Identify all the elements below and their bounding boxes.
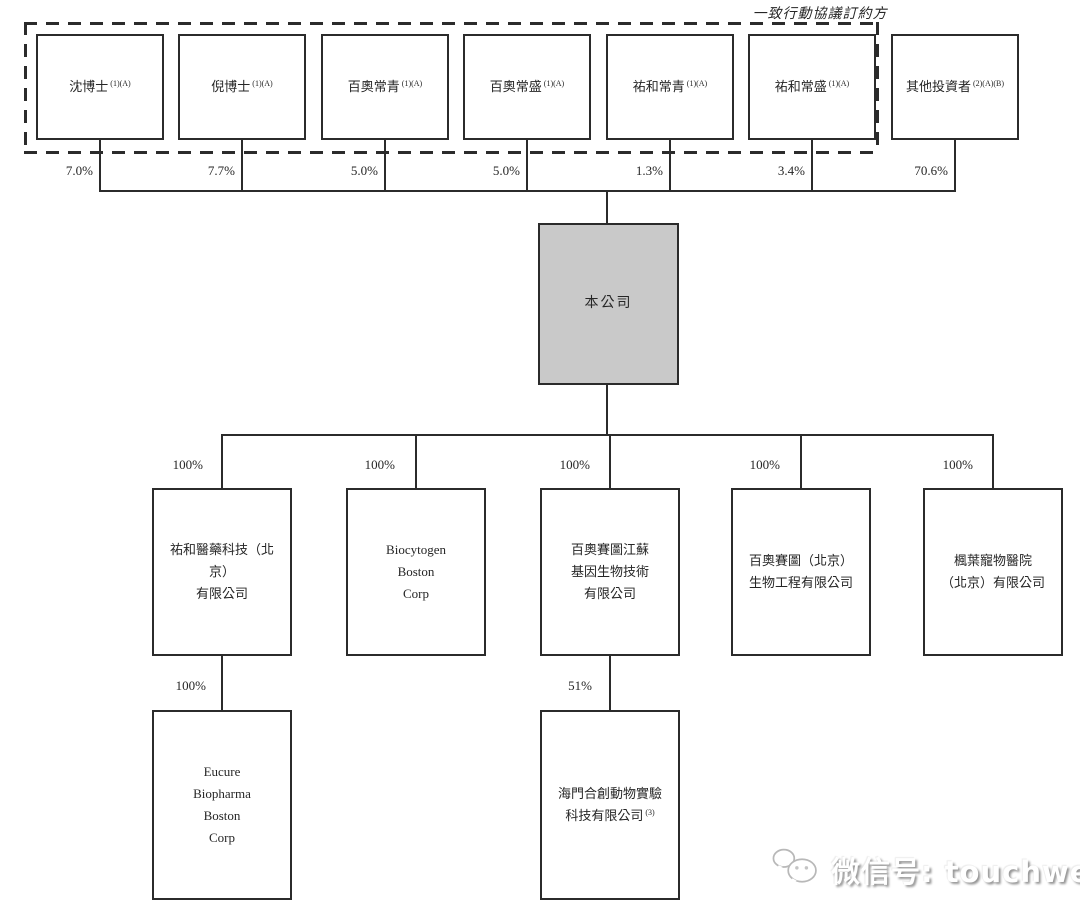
connector-drop	[99, 139, 101, 192]
footnote-marker: (3)	[645, 808, 654, 817]
subsidiary-pct-5: 100%	[917, 457, 973, 473]
footnote-marker: (1)(A)	[252, 79, 272, 88]
shareholder-label: 其他投資者(2)(A)(B)	[906, 76, 1004, 98]
ownership-pct-5: 1.3%	[603, 163, 663, 179]
wechat-watermark: 微信号: touchweb	[770, 845, 1080, 894]
footnote-marker: (1)(A)	[687, 79, 707, 88]
subsubsidiary-label: Eucure Biopharma Boston Corp	[193, 761, 251, 849]
subsidiary-box-4: 百奧賽圖（北京） 生物工程有限公司	[731, 488, 871, 656]
subsidiary-box-3: 百奧賽圖江蘇 基因生物技術 有限公司	[540, 488, 680, 656]
ownership-pct-1: 7.0%	[33, 163, 93, 179]
shareholder-box-3: 百奧常青(1)(A)	[321, 34, 449, 140]
footnote-marker: (1)(A)	[829, 79, 849, 88]
company-box: 本公司	[538, 223, 679, 385]
connector-drop	[241, 139, 243, 192]
subsidiary-pct-1: 100%	[147, 457, 203, 473]
shareholder-label: 沈博士(1)(A)	[69, 76, 130, 98]
company-label: 本公司	[585, 292, 633, 316]
shareholder-label: 百奧常盛(1)(A)	[490, 76, 564, 98]
connector-drop	[992, 434, 994, 489]
ownership-pct-3: 5.0%	[318, 163, 378, 179]
watermark-text: 微信号: touchweb	[831, 849, 1080, 891]
connector-drop	[526, 139, 528, 192]
connector-drop	[221, 655, 223, 711]
shareholder-box-1: 沈博士(1)(A)	[36, 34, 164, 140]
shareholder-box-7: 其他投資者(2)(A)(B)	[891, 34, 1019, 140]
footnote-marker: (1)(A)	[402, 79, 422, 88]
dashed-group-border-left	[24, 22, 27, 154]
subsidiary-pct-4: 100%	[724, 457, 780, 473]
shareholder-label: 祐和常盛(1)(A)	[775, 76, 849, 98]
footnote-marker: (1)(A)	[544, 79, 564, 88]
wechat-icon	[770, 845, 822, 894]
subsubsidiary-box-2: 海門合創動物實驗 科技有限公司(3)	[540, 710, 680, 900]
connector-drop	[811, 139, 813, 192]
connector-bus-top	[99, 190, 956, 192]
connector-drop	[609, 434, 611, 489]
connector-drop	[221, 434, 223, 489]
shareholder-box-6: 祐和常盛(1)(A)	[748, 34, 876, 140]
subsidiary-pct-2: 100%	[339, 457, 395, 473]
dashed-group-border-top	[24, 22, 879, 25]
dashed-group-border-bottom	[24, 151, 879, 154]
shareholder-label: 祐和常青(1)(A)	[633, 76, 707, 98]
subsidiary-box-1: 祐和醫藥科技（北京） 有限公司	[152, 488, 292, 656]
shareholder-label: 百奧常青(1)(A)	[348, 76, 422, 98]
connector-drop	[384, 139, 386, 192]
subsubsidiary-box-1: Eucure Biopharma Boston Corp	[152, 710, 292, 900]
subsidiary-pct-3: 100%	[534, 457, 590, 473]
subsidiary-label: 祐和醫藥科技（北京） 有限公司	[158, 539, 286, 605]
subsidiary-label: Biocytogen Boston Corp	[386, 539, 446, 605]
ownership-pct-2: 7.7%	[175, 163, 235, 179]
org-chart-canvas: 一致行動協議訂約方 沈博士(1)(A) 倪博士(1)(A) 百奧常青(1)(A)…	[0, 0, 1080, 921]
shareholder-box-5: 祐和常青(1)(A)	[606, 34, 734, 140]
connector-drop	[609, 655, 611, 711]
connector-drop	[415, 434, 417, 489]
subsubsidiary-pct-2: 51%	[536, 678, 592, 694]
subsidiary-label: 百奧賽圖（北京） 生物工程有限公司	[749, 550, 853, 594]
subsubsidiary-pct-1: 100%	[150, 678, 206, 694]
connector-bus-subsidiaries	[221, 434, 994, 436]
footnote-marker: (1)(A)	[110, 79, 130, 88]
connector-drop	[669, 139, 671, 192]
subsidiary-box-5: 楓葉寵物醫院 （北京）有限公司	[923, 488, 1063, 656]
footnote-marker: (2)(A)(B)	[973, 79, 1004, 88]
subsubsidiary-label: 海門合創動物實驗 科技有限公司(3)	[558, 783, 662, 827]
ownership-pct-6: 3.4%	[745, 163, 805, 179]
connector-drop	[606, 190, 608, 224]
subsidiary-label: 楓葉寵物醫院 （北京）有限公司	[941, 550, 1045, 594]
subsidiary-label: 百奧賽圖江蘇 基因生物技術 有限公司	[571, 539, 649, 605]
connector-drop	[954, 139, 956, 192]
dashed-group-border-right	[876, 22, 879, 154]
shareholder-label: 倪博士(1)(A)	[211, 76, 272, 98]
shareholder-box-2: 倪博士(1)(A)	[178, 34, 306, 140]
acting-in-concert-label: 一致行動協議訂約方	[745, 3, 895, 23]
subsidiary-box-2: Biocytogen Boston Corp	[346, 488, 486, 656]
ownership-pct-4: 5.0%	[460, 163, 520, 179]
ownership-pct-7: 70.6%	[888, 163, 948, 179]
shareholder-box-4: 百奧常盛(1)(A)	[463, 34, 591, 140]
connector-drop	[800, 434, 802, 489]
connector-drop	[606, 384, 608, 435]
